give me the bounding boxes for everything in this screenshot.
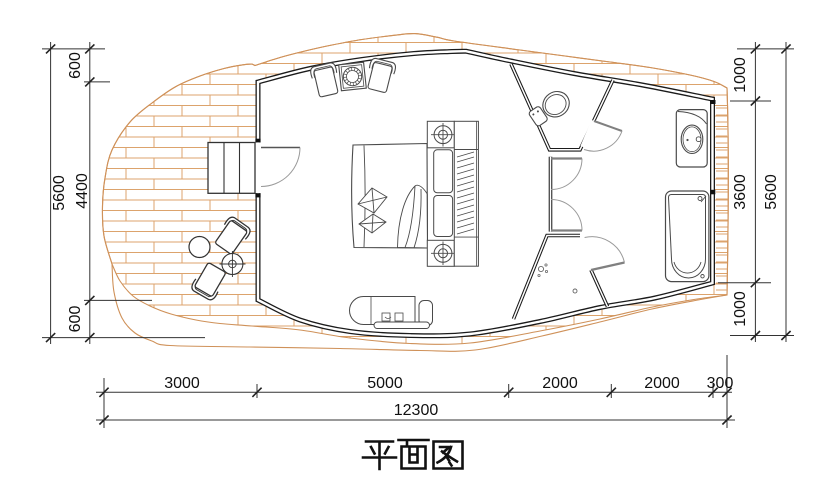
svg-text:5600: 5600 [763, 174, 780, 210]
svg-text:1000: 1000 [732, 57, 749, 93]
svg-text:5600: 5600 [51, 175, 68, 211]
svg-text:3600: 3600 [732, 174, 749, 210]
svg-text:3000: 3000 [164, 375, 200, 392]
svg-text:2000: 2000 [542, 375, 578, 392]
svg-text:2000: 2000 [644, 375, 680, 392]
svg-text:5000: 5000 [367, 375, 403, 392]
svg-text:300: 300 [707, 375, 734, 392]
svg-text:12300: 12300 [394, 402, 439, 419]
svg-text:600: 600 [67, 306, 84, 333]
svg-text:1000: 1000 [732, 291, 749, 327]
svg-text:600: 600 [67, 52, 84, 79]
svg-text:4400: 4400 [74, 173, 91, 209]
